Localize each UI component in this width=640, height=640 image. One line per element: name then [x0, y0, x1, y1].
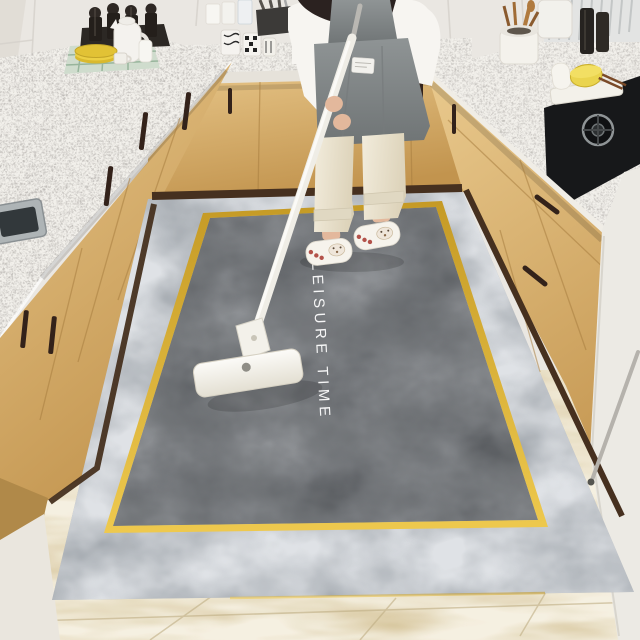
mop-hinge-bolt [251, 335, 257, 341]
milk-bottle [139, 40, 152, 62]
kitchen-photo: LEISURE TIME [0, 0, 640, 640]
white-canister [538, 0, 572, 38]
stove-burner [583, 115, 613, 145]
apron-bib [328, 0, 398, 46]
plate-stack [75, 45, 117, 64]
kitchen-scene: LEISURE TIME [0, 0, 640, 640]
left-cuff [314, 208, 352, 221]
right-pant-leg [362, 133, 406, 220]
apron-tag [351, 57, 374, 73]
cabinet-handle [228, 88, 232, 114]
shelf-cups [206, 0, 252, 24]
